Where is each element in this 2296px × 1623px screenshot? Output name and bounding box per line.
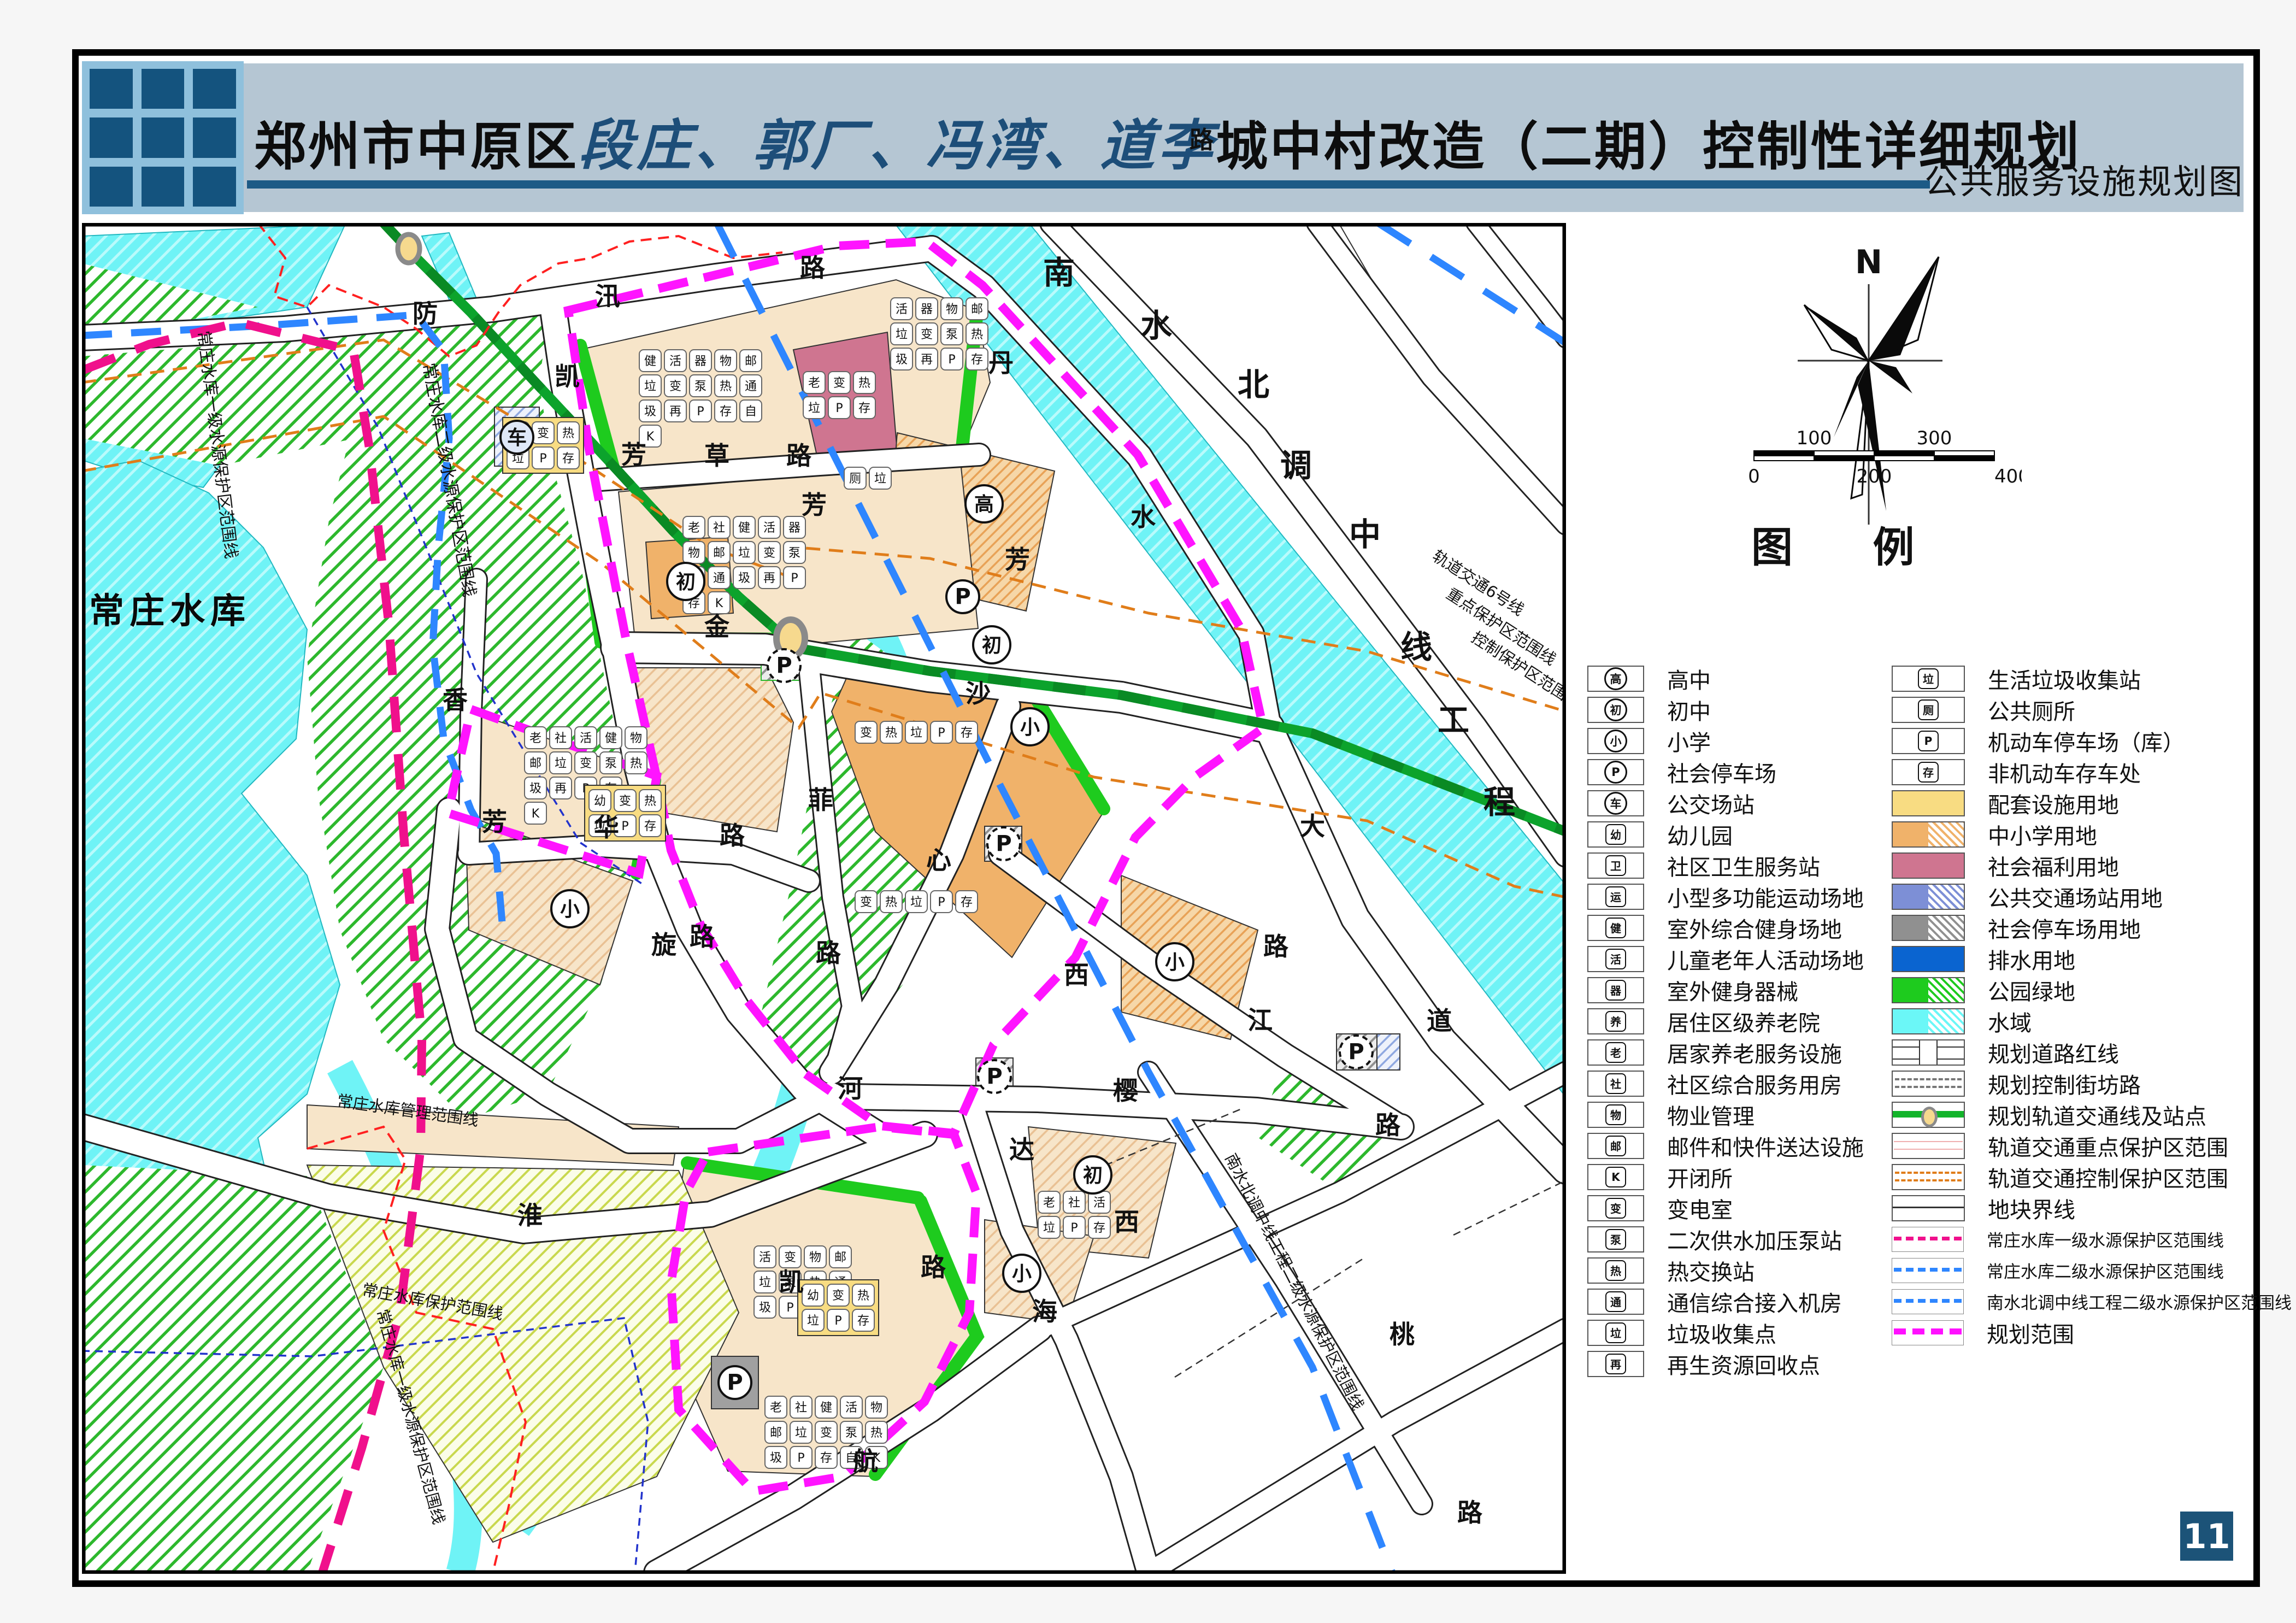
map-label: 海 <box>1032 1297 1057 1326</box>
legend-swatch <box>1892 1320 1964 1345</box>
legend-swatch <box>1892 884 1965 910</box>
legend-label: 公共交通场站用地 <box>1988 881 2163 913</box>
legend-item: 存非机动车存车处 <box>1892 756 2141 787</box>
legend-label: 小学 <box>1667 725 1711 757</box>
legend-swatch: 厕 <box>1892 697 1965 723</box>
svg-text:垃: 垃 <box>807 1314 819 1328</box>
svg-text:初: 初 <box>676 571 696 593</box>
legend-label: 中小学用地 <box>1988 819 2097 850</box>
map-label: 芳 <box>482 807 507 837</box>
svg-text:K: K <box>532 807 540 821</box>
map-label: 丹 <box>988 348 1014 378</box>
svg-text:健: 健 <box>605 732 617 745</box>
legend-item: 排水用地 <box>1892 943 2075 974</box>
legend-glyph-icon: 车 <box>1604 792 1627 815</box>
svg-text:幼: 幼 <box>594 795 606 808</box>
title-prefix: 郑州市中原区 <box>254 117 579 177</box>
legend-glyph-icon: 垃 <box>1605 1322 1626 1343</box>
map-label: 芳 <box>621 440 646 469</box>
legend-label: 室外综合健身场地 <box>1667 912 1842 944</box>
map-label: 芳 <box>802 490 827 520</box>
svg-text:存: 存 <box>961 726 973 740</box>
legend-swatch: 泵 <box>1587 1226 1644 1252</box>
svg-text:泵: 泵 <box>605 757 617 771</box>
svg-text:泵: 泵 <box>946 328 958 342</box>
svg-text:老: 老 <box>688 521 700 535</box>
svg-text:存: 存 <box>720 405 732 419</box>
legend-item: 轨道交通重点保护区范围 <box>1892 1130 2228 1161</box>
legend-label: 非机动车存车处 <box>1988 756 2141 788</box>
map-label: 路 <box>1263 932 1289 961</box>
legend-swatch: 老 <box>1587 1039 1644 1066</box>
svg-text:活: 活 <box>896 303 908 316</box>
svg-text:健: 健 <box>644 355 656 368</box>
svg-text:热: 热 <box>885 896 897 909</box>
legend-item: 常庄水库二级水源保护区范围线 <box>1892 1255 2224 1286</box>
svg-text:300: 300 <box>1917 427 1952 449</box>
svg-text:活: 活 <box>580 732 592 745</box>
map-label: 江 <box>1247 1005 1273 1035</box>
legend-glyph-icon: 活 <box>1605 949 1626 969</box>
svg-text:变: 变 <box>860 896 872 909</box>
legend-label: 南水北调中线工程二级水源保护区范围线 <box>1987 1289 2292 1314</box>
legend-swatch <box>1892 977 1965 1003</box>
metro-station <box>398 234 420 263</box>
svg-text:物: 物 <box>946 303 958 316</box>
map-label: 淮 <box>517 1201 543 1230</box>
legend-glyph-icon: 老 <box>1605 1042 1626 1063</box>
svg-text:垃: 垃 <box>738 546 750 560</box>
legend-title: 图 例 <box>1751 514 1947 574</box>
svg-text:器: 器 <box>694 355 707 368</box>
svg-text:热: 热 <box>885 726 897 740</box>
svg-text:初: 初 <box>1083 1165 1103 1187</box>
legend-item: 规划轨道交通线及站点 <box>1892 1099 2206 1130</box>
legend-glyph-icon: 养 <box>1605 1011 1626 1032</box>
legend-label: 物业管理 <box>1667 1099 1755 1131</box>
legend-label: 公交场站 <box>1667 787 1755 819</box>
legend-item: 小小学 <box>1587 725 1711 756</box>
legend-label: 社会福利用地 <box>1988 850 2119 881</box>
svg-text:圾: 圾 <box>529 782 541 796</box>
svg-text:变: 变 <box>537 427 549 440</box>
legend-swatch: 器 <box>1587 977 1644 1003</box>
map-label: 西 <box>1064 960 1089 990</box>
legend-label: 轨道交通重点保护区范围 <box>1988 1130 2228 1162</box>
legend-item: 常庄水库一级水源保护区范围线 <box>1892 1224 2224 1255</box>
svg-text:器: 器 <box>788 521 800 535</box>
map-label: 芳 <box>1005 545 1030 574</box>
svg-text:初: 初 <box>982 634 1002 657</box>
legend-swatch: P <box>1587 759 1644 785</box>
svg-text:热: 热 <box>857 1289 869 1303</box>
svg-text:邮: 邮 <box>713 546 725 560</box>
legend-label: 热交换站 <box>1667 1255 1755 1286</box>
legend-item: 公共交通场站用地 <box>1892 881 2163 912</box>
map-label: 路 <box>800 253 826 283</box>
legend-label: 小型多功能运动场地 <box>1667 881 1864 913</box>
legend-swatch: 车 <box>1587 790 1644 816</box>
svg-text:变: 变 <box>921 328 933 342</box>
svg-text:热: 热 <box>870 1426 882 1440</box>
svg-text:100: 100 <box>1797 427 1832 449</box>
map-label: 中 <box>1349 516 1381 553</box>
legend-label: 常庄水库一级水源保护区范围线 <box>1987 1227 2224 1251</box>
map-label: 大 <box>1300 811 1325 841</box>
svg-text:垃: 垃 <box>555 757 567 771</box>
legend-glyph-icon: 泵 <box>1605 1229 1626 1250</box>
legend-item: 器室外健身器械 <box>1587 974 1798 1005</box>
legend-label: 高中 <box>1667 663 1711 695</box>
legend-label: 通信综合接入机房 <box>1667 1286 1842 1318</box>
facility-icon-cluster: 变热垃P存 <box>855 721 978 743</box>
map-label: 香 <box>443 685 468 715</box>
legend-right-column: 垃生活垃圾收集站厕公共厕所P机动车停车场（库）存非机动车存车处配套设施用地中小学… <box>1892 663 2285 1395</box>
legend-item: 高高中 <box>1587 663 1711 694</box>
svg-text:垃: 垃 <box>874 472 886 486</box>
map-label: 调 <box>1280 447 1312 484</box>
legend-swatch: 存 <box>1892 759 1965 785</box>
svg-text:变: 变 <box>619 795 631 808</box>
legend-label: 排水用地 <box>1988 943 2075 975</box>
legend-label: 规划道路红线 <box>1988 1037 2119 1068</box>
legend-swatch: 卫 <box>1587 852 1644 879</box>
legend-label: 开闭所 <box>1667 1161 1733 1193</box>
svg-text:P: P <box>986 1064 1002 1089</box>
legend-swatch: 运 <box>1587 884 1644 910</box>
map-marker-小: 小 <box>1156 943 1193 980</box>
map-label: 路 <box>690 922 715 951</box>
legend-label: 社会停车场用地 <box>1988 912 2141 944</box>
legend-swatch: 活 <box>1587 946 1644 972</box>
legend-glyph-icon: 幼 <box>1605 824 1626 845</box>
svg-text:P: P <box>834 1314 841 1328</box>
svg-text:P: P <box>697 405 704 419</box>
map-label: 华 <box>594 813 619 842</box>
legend-swatch: P <box>1892 728 1965 754</box>
legend-item: 社社区综合服务用房 <box>1587 1068 1842 1099</box>
legend-item: 养居住区级养老院 <box>1587 1005 1820 1037</box>
legend-item: 活儿童老年人活动场地 <box>1587 943 1864 974</box>
legend-swatch <box>1892 852 1965 879</box>
map-label: 旋 <box>651 930 676 960</box>
legend-swatch: K <box>1587 1164 1644 1190</box>
svg-text:圾: 圾 <box>896 353 908 367</box>
legend-item: P机动车停车场（库） <box>1892 725 2185 756</box>
svg-text:健: 健 <box>820 1401 832 1415</box>
legend-label: 居住区级养老院 <box>1667 1005 1820 1037</box>
svg-text:P: P <box>938 726 945 740</box>
legend-label: 二次供水加压泵站 <box>1667 1224 1842 1255</box>
legend-label: 地块界线 <box>1988 1192 2075 1224</box>
legend-swatch: 热 <box>1587 1257 1644 1284</box>
svg-text:老: 老 <box>1043 1196 1055 1210</box>
legend-item: 卫社区卫生服务站 <box>1587 850 1820 881</box>
map-label: 沙 <box>966 679 991 708</box>
legend-item: 热热交换站 <box>1587 1255 1755 1286</box>
legend-swatch <box>1892 790 1965 816</box>
map-marker-P: P <box>768 649 800 682</box>
map-label: 草 <box>704 441 729 471</box>
legend-swatch: 社 <box>1587 1071 1644 1097</box>
legend-item: 垃垃圾收集点 <box>1587 1317 1776 1348</box>
svg-text:活: 活 <box>845 1401 857 1415</box>
legend-label: 变电室 <box>1667 1192 1733 1224</box>
svg-text:变: 变 <box>669 380 681 393</box>
svg-text:热: 热 <box>644 795 656 808</box>
legend-item: 老居家养老服务设施 <box>1587 1037 1842 1068</box>
svg-text:K: K <box>646 430 655 444</box>
legend-swatch <box>1892 1071 1965 1097</box>
svg-text:P: P <box>835 402 843 415</box>
svg-text:器: 器 <box>921 303 933 316</box>
legend-glyph-icon: P <box>1604 761 1627 784</box>
map-label: 工 <box>1438 702 1469 739</box>
map-label: 程 <box>1483 784 1515 821</box>
svg-text:邮: 邮 <box>745 355 757 368</box>
legend-swatch <box>1892 1039 1965 1066</box>
svg-text:0: 0 <box>1748 466 1760 487</box>
svg-text:再: 再 <box>763 572 775 585</box>
map-label: 水 <box>1131 502 1156 532</box>
svg-text:400M: 400M <box>1994 466 2022 487</box>
map-label: 北 <box>1238 366 1269 403</box>
svg-text:垃: 垃 <box>910 726 922 740</box>
facility-icon-cluster: 变热垃P存 <box>855 891 978 913</box>
map-label: 路 <box>786 441 812 471</box>
legend-item: 规划控制街坊路 <box>1892 1068 2141 1099</box>
legend-glyph-icon: 物 <box>1605 1104 1626 1125</box>
legend-swatch <box>1892 1133 1965 1159</box>
map-marker-初: 初 <box>973 626 1010 663</box>
legend-item: 物物业管理 <box>1587 1099 1755 1130</box>
svg-text:P: P <box>791 572 798 585</box>
map-subtitle: 公共服务设施规划图 <box>1924 154 2244 203</box>
legend-glyph-icon: K <box>1605 1167 1626 1187</box>
legend-swatch <box>1892 1289 1964 1314</box>
legend-label: 垃圾收集点 <box>1667 1317 1776 1349</box>
svg-text:幼: 幼 <box>807 1289 819 1303</box>
map-marker-P: P <box>946 580 979 613</box>
svg-text:物: 物 <box>720 355 732 368</box>
svg-text:存: 存 <box>858 402 870 415</box>
legend-item: 南水北调中线工程二级水源保护区范围线 <box>1892 1286 2292 1317</box>
legend-item: P社会停车场 <box>1587 756 1776 787</box>
map-label: 线 <box>1400 628 1432 666</box>
map-marker-车: 车 <box>501 421 533 454</box>
svg-text:P: P <box>955 584 970 609</box>
svg-text:热: 热 <box>630 757 642 771</box>
legend-swatch: 垃 <box>1587 1320 1644 1346</box>
legend-item: 运小型多功能运动场地 <box>1587 881 1864 912</box>
svg-text:热: 热 <box>720 380 732 393</box>
svg-text:存: 存 <box>857 1314 869 1328</box>
svg-text:存: 存 <box>1093 1221 1105 1235</box>
svg-text:P: P <box>727 1370 743 1395</box>
map-label: 达 <box>1009 1135 1034 1165</box>
svg-text:P: P <box>776 653 792 678</box>
svg-text:P: P <box>938 896 945 909</box>
legend-item: 再再生资源回收点 <box>1587 1348 1820 1379</box>
svg-text:存: 存 <box>562 452 574 466</box>
legend-swatch: 健 <box>1587 915 1644 941</box>
svg-text:垃: 垃 <box>759 1276 771 1290</box>
legend-swatch: 物 <box>1587 1102 1644 1128</box>
svg-text:P: P <box>1070 1221 1078 1235</box>
legend-label: 社会停车场 <box>1667 756 1776 788</box>
legend-label: 初中 <box>1667 694 1711 726</box>
reservoir-name: 常庄水库 <box>89 591 251 632</box>
map-label: 路 <box>921 1252 946 1282</box>
page-title: 郑州市中原区段庄、郭厂、冯湾、道李路城中村改造（二期）控制性详细规划 <box>254 101 2081 180</box>
legend-label: 室外健身器械 <box>1667 974 1798 1006</box>
svg-text:小: 小 <box>560 898 580 921</box>
map-label: 凯 <box>779 1267 804 1297</box>
svg-text:邮: 邮 <box>971 303 983 316</box>
svg-text:社: 社 <box>555 732 567 745</box>
legend-item: 规划范围 <box>1892 1317 2074 1348</box>
svg-text:圾: 圾 <box>770 1451 782 1465</box>
legend-item: 水域 <box>1892 1005 2032 1037</box>
legend-glyph-icon: 邮 <box>1605 1136 1626 1156</box>
svg-text:活: 活 <box>1093 1196 1105 1210</box>
map-label: 金 <box>704 612 730 642</box>
svg-text:垃: 垃 <box>896 328 908 342</box>
svg-text:垃: 垃 <box>795 1426 807 1440</box>
map-label: 道 <box>1427 1006 1452 1036</box>
legend-item: 地块界线 <box>1892 1192 2075 1224</box>
legend-item: 幼幼儿园 <box>1587 819 1733 850</box>
legend-item: 邮邮件和快件送达设施 <box>1587 1130 1864 1161</box>
legend-label: 居家养老服务设施 <box>1667 1037 1842 1068</box>
svg-text:变: 变 <box>832 1289 844 1303</box>
scale-bar: 1003000200400M <box>1738 421 2022 497</box>
legend-swatch <box>1892 1102 1965 1128</box>
map-label: 路 <box>720 821 745 850</box>
map-marker-高: 高 <box>966 485 1003 522</box>
map-marker-小: 小 <box>551 890 588 927</box>
map-label: 水 <box>1140 307 1173 344</box>
svg-text:社: 社 <box>713 521 725 535</box>
svg-text:邮: 邮 <box>770 1426 782 1440</box>
svg-text:通: 通 <box>745 380 757 393</box>
legend-item: 垃生活垃圾收集站 <box>1892 663 2141 694</box>
legend-swatch <box>1892 1227 1964 1252</box>
legend-swatch: 高 <box>1587 666 1644 692</box>
svg-text:圾: 圾 <box>738 572 750 585</box>
page-number: 11 <box>2180 1512 2233 1561</box>
map-label: 路 <box>1375 1110 1401 1140</box>
svg-text:物: 物 <box>688 546 700 560</box>
svg-text:车: 车 <box>507 427 527 449</box>
map-label: 河 <box>838 1074 863 1103</box>
svg-text:邮: 邮 <box>834 1251 846 1265</box>
legend-swatch <box>1892 1164 1965 1190</box>
planning-map: 健活器物邮垃变泵热通圾再P存自K活器物邮垃变泵热圾再P存老变热垃P存老社健活器物… <box>82 223 1566 1574</box>
svg-text:社: 社 <box>1068 1196 1080 1210</box>
map-label: 心 <box>926 845 951 875</box>
logo-grid-icon <box>82 61 244 214</box>
legend-item: 车公交场站 <box>1587 787 1755 819</box>
svg-text:变: 变 <box>580 757 592 771</box>
map-label: 西 <box>1114 1207 1139 1237</box>
svg-text:P: P <box>797 1451 804 1465</box>
legend-glyph-icon: 高 <box>1604 667 1627 690</box>
legend-swatch <box>1892 1258 1964 1283</box>
legend-label: 轨道交通控制保护区范围 <box>1988 1161 2228 1193</box>
legend-swatch: 小 <box>1587 728 1644 754</box>
legend-label: 公共厕所 <box>1988 694 2075 726</box>
svg-text:自: 自 <box>745 405 757 419</box>
map-marker-P: P <box>987 827 1020 860</box>
svg-text:活: 活 <box>763 521 775 535</box>
legend-label: 生活垃圾收集站 <box>1988 663 2141 695</box>
svg-text:P: P <box>539 452 546 466</box>
svg-text:老: 老 <box>770 1401 782 1415</box>
legend-swatch: 幼 <box>1587 821 1644 848</box>
legend-left-column: 高高中初初中小小学P社会停车场车公交场站幼幼儿园卫社区卫生服务站运小型多功能运动… <box>1587 663 1888 1395</box>
legend-label: 幼儿园 <box>1667 819 1733 850</box>
legend-glyph-icon: 卫 <box>1605 855 1626 876</box>
map-label: 南 <box>1043 254 1075 291</box>
legend-glyph-icon: 小 <box>1604 730 1627 752</box>
svg-text:存: 存 <box>644 820 656 833</box>
svg-text:再: 再 <box>669 405 681 419</box>
legend-item: 变变电室 <box>1587 1192 1733 1224</box>
svg-text:变: 变 <box>820 1426 832 1440</box>
svg-text:厕: 厕 <box>849 472 861 486</box>
legend-label: 规划范围 <box>1987 1317 2074 1349</box>
map-label: 汛 <box>595 281 620 311</box>
map-marker-P: P <box>1340 1036 1373 1068</box>
svg-text:社: 社 <box>795 1401 807 1415</box>
map-label: 桃 <box>1390 1320 1415 1349</box>
svg-text:小: 小 <box>1020 716 1040 739</box>
legend-swatch: 初 <box>1587 697 1644 723</box>
map-marker-初: 初 <box>667 563 704 600</box>
svg-text:物: 物 <box>630 732 642 745</box>
legend-glyph-icon: 运 <box>1605 886 1626 907</box>
legend-item: 初初中 <box>1587 694 1711 725</box>
legend-item: 轨道交通控制保护区范围 <box>1892 1161 2228 1192</box>
map-label: 樱 <box>1113 1076 1138 1105</box>
svg-text:小: 小 <box>1165 951 1185 974</box>
legend-label: 再生资源回收点 <box>1667 1348 1820 1380</box>
title-villages: 段庄、郭厂、冯湾、道李 <box>579 113 1216 178</box>
svg-text:P: P <box>996 831 1011 856</box>
legend-swatch: 垃 <box>1892 666 1965 692</box>
map-label: 航 <box>853 1446 878 1476</box>
svg-text:老: 老 <box>808 377 820 390</box>
map-marker-小: 小 <box>1011 708 1049 745</box>
svg-text:200: 200 <box>1857 466 1892 487</box>
legend-item: 社会停车场用地 <box>1892 912 2141 943</box>
svg-text:变: 变 <box>784 1251 796 1265</box>
legend-item: 健室外综合健身场地 <box>1587 912 1842 943</box>
svg-text:变: 变 <box>860 726 872 740</box>
legend-label: 社区综合服务用房 <box>1667 1068 1842 1099</box>
legend-label: 邮件和快件送达设施 <box>1667 1130 1864 1162</box>
legend-item: 配套设施用地 <box>1892 787 2119 819</box>
legend-glyph-icon: 通 <box>1605 1291 1626 1312</box>
legend-glyph-icon: 初 <box>1604 698 1627 721</box>
svg-text:高: 高 <box>974 493 994 516</box>
legend-item: 社会福利用地 <box>1892 850 2119 881</box>
svg-text:热: 热 <box>858 377 870 390</box>
svg-text:热: 热 <box>971 328 983 342</box>
svg-text:垃: 垃 <box>1043 1221 1055 1235</box>
svg-text:物: 物 <box>870 1401 882 1415</box>
